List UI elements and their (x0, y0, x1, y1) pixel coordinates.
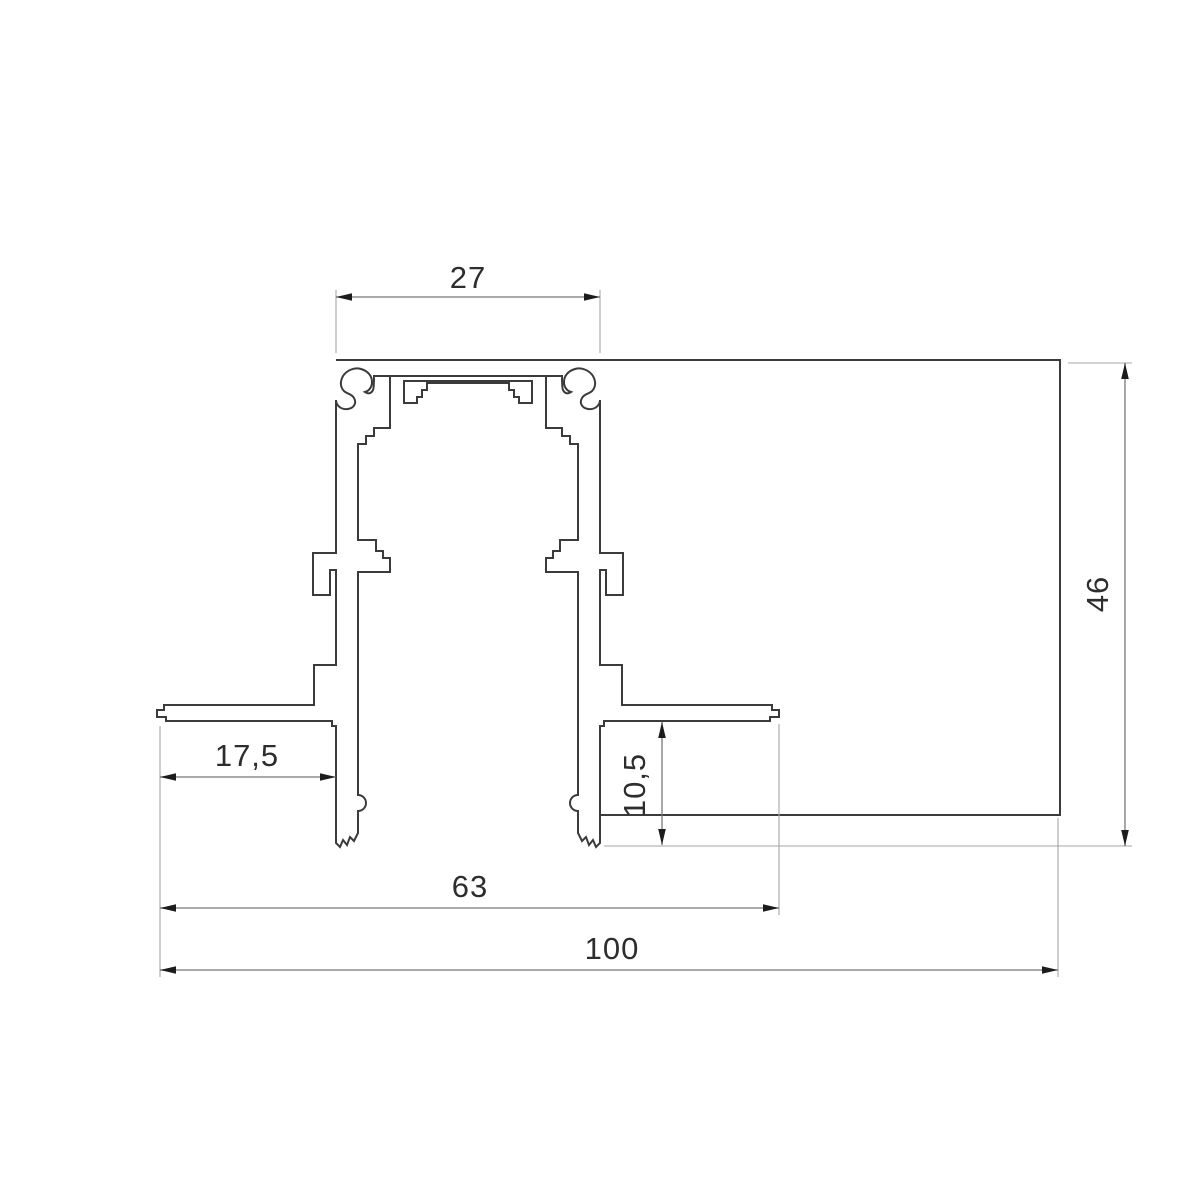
dimension-label-10-5: 10,5 (617, 753, 652, 817)
dimension-recess-depth: 10,5 (617, 722, 666, 845)
arrowhead-100-left (160, 966, 176, 974)
ceiling-panel-outline (336, 360, 1060, 815)
dimension-label-63: 63 (452, 869, 488, 904)
dimension-label-46: 46 (1080, 576, 1115, 612)
dimension-overall-height: 46 (1080, 363, 1129, 846)
arrowhead-17-5-right (320, 773, 336, 781)
arrowhead-63-left (160, 904, 176, 912)
dimension-label-17-5: 17,5 (215, 738, 279, 773)
track-bridge-outline (404, 381, 532, 403)
arrowhead-63-right (763, 904, 779, 912)
arrowhead-46-top (1121, 363, 1129, 379)
arrowhead-27-left (336, 293, 352, 301)
dimension-label-27: 27 (450, 260, 486, 295)
arrowhead-17-5-left (160, 773, 176, 781)
dimension-top-width: 27 (336, 260, 600, 301)
dimension-overall-width: 100 (160, 931, 1058, 974)
profile-left-outline (157, 368, 390, 847)
technical-drawing-canvas: 27 46 17,5 10,5 63 100 (0, 0, 1200, 1200)
arrowhead-27-right (584, 293, 600, 301)
profile-drawing-svg: 27 46 17,5 10,5 63 100 (0, 0, 1200, 1200)
arrowhead-46-bottom (1121, 830, 1129, 846)
arrowhead-100-right (1042, 966, 1058, 974)
dimension-label-100: 100 (585, 931, 640, 966)
arrowhead-10-5-top (658, 722, 666, 738)
dimension-legs-span: 63 (160, 869, 779, 912)
arrowhead-10-5-bottom (658, 829, 666, 845)
dimension-flange-offset: 17,5 (160, 738, 336, 781)
